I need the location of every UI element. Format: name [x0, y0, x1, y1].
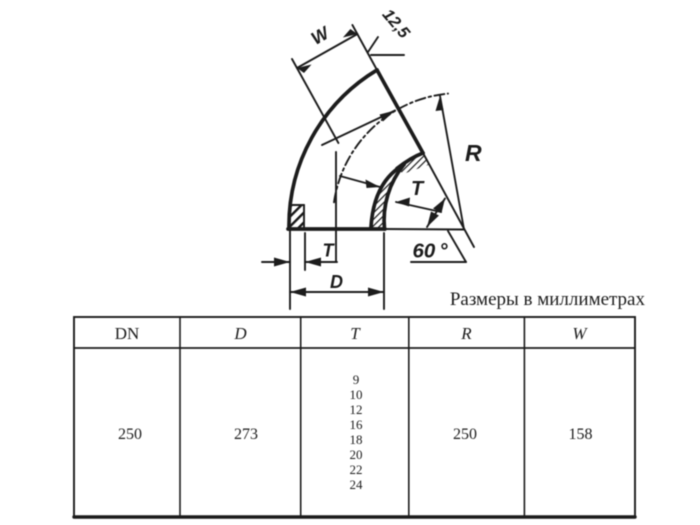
svg-text:12,5: 12,5 [379, 6, 414, 43]
svg-text:D: D [330, 272, 343, 292]
svg-text:T: T [323, 241, 336, 261]
svg-text:R: R [465, 140, 482, 166]
svg-text:T: T [411, 178, 425, 200]
svg-text:W: W [308, 22, 334, 49]
svg-text:60 °: 60 ° [413, 240, 449, 263]
